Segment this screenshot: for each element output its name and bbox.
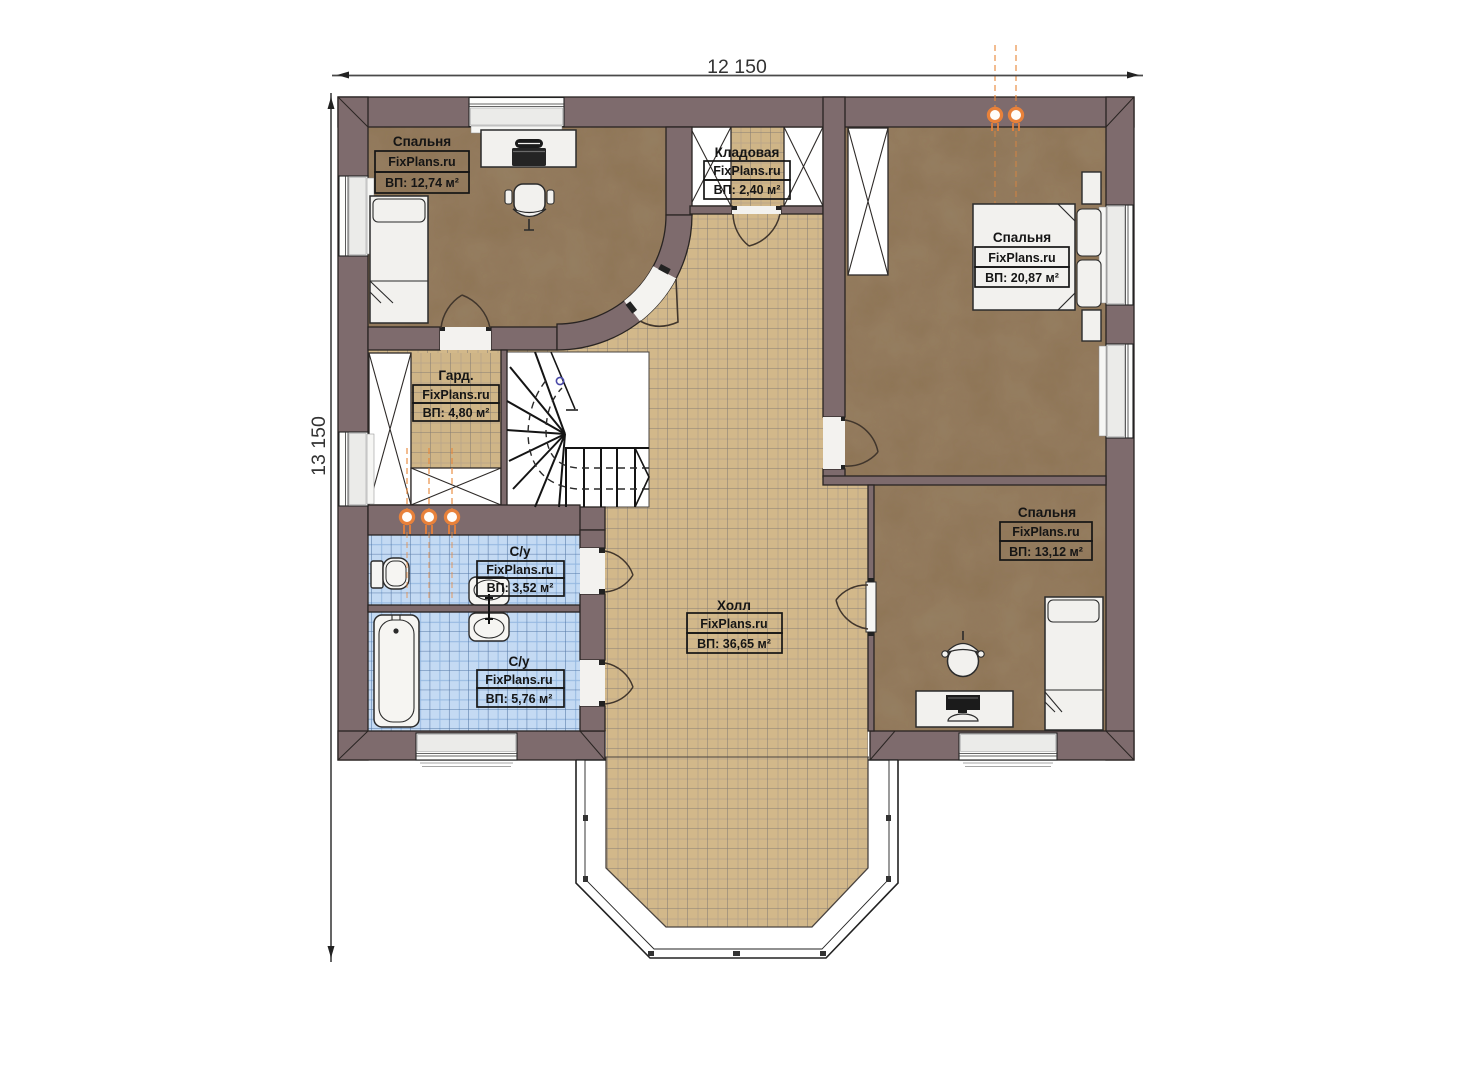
- svg-text:Кладовая: Кладовая: [715, 145, 780, 160]
- svg-text:FixPlans.ru: FixPlans.ru: [485, 673, 552, 687]
- svg-text:Спальня: Спальня: [993, 230, 1051, 245]
- svg-text:ВП: 2,40 м²: ВП: 2,40 м²: [714, 183, 781, 197]
- svg-text:Спальня: Спальня: [1018, 505, 1076, 520]
- svg-text:FixPlans.ru: FixPlans.ru: [713, 164, 780, 178]
- svg-text:ВП: 12,74 м²: ВП: 12,74 м²: [385, 176, 459, 190]
- svg-text:ВП: 5,76 м²: ВП: 5,76 м²: [486, 692, 553, 706]
- svg-text:FixPlans.ru: FixPlans.ru: [700, 617, 767, 631]
- svg-text:FixPlans.ru: FixPlans.ru: [1012, 525, 1079, 539]
- svg-text:FixPlans.ru: FixPlans.ru: [388, 155, 455, 169]
- svg-text:Гард.: Гард.: [438, 368, 473, 383]
- svg-text:FixPlans.ru: FixPlans.ru: [422, 388, 489, 402]
- svg-text:ВП: 3,52 м²: ВП: 3,52 м²: [487, 581, 554, 595]
- svg-text:13 150: 13 150: [308, 416, 330, 476]
- svg-text:FixPlans.ru: FixPlans.ru: [486, 563, 553, 577]
- svg-text:Холл: Холл: [717, 598, 751, 613]
- svg-text:Спальня: Спальня: [393, 134, 451, 149]
- svg-text:ВП: 20,87 м²: ВП: 20,87 м²: [985, 271, 1059, 285]
- svg-text:С/у: С/у: [508, 654, 530, 669]
- svg-text:ВП: 4,80 м²: ВП: 4,80 м²: [423, 406, 490, 420]
- svg-text:12 150: 12 150: [707, 56, 767, 78]
- svg-text:FixPlans.ru: FixPlans.ru: [988, 251, 1055, 265]
- svg-text:С/у: С/у: [509, 544, 531, 559]
- svg-text:ВП: 13,12 м²: ВП: 13,12 м²: [1009, 545, 1083, 559]
- svg-text:ВП: 36,65 м²: ВП: 36,65 м²: [697, 637, 771, 651]
